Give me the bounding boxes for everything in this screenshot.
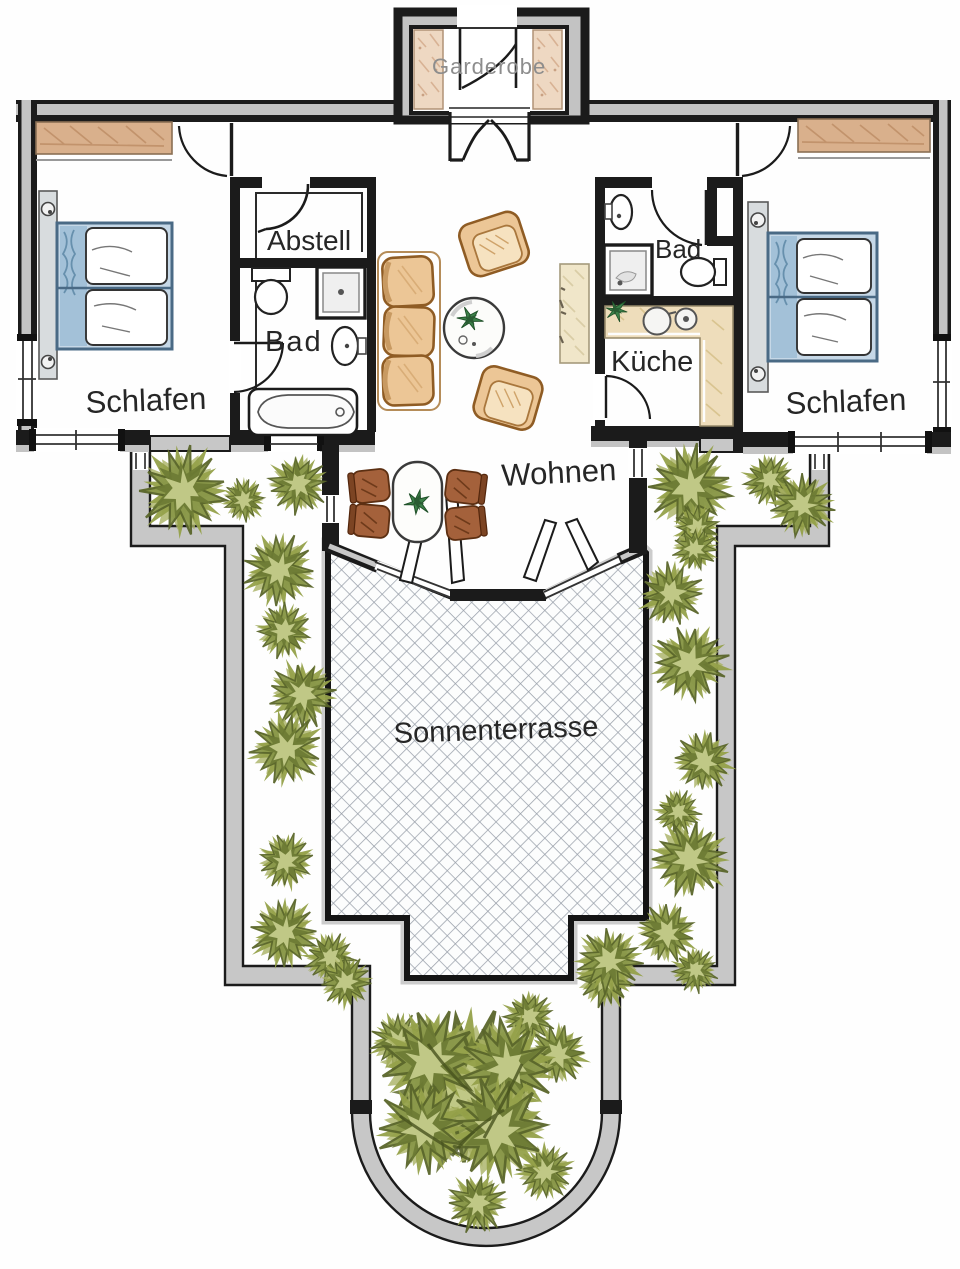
- svg-text:Küche: Küche: [611, 346, 693, 378]
- svg-text:Bad: Bad: [265, 326, 323, 358]
- svg-text:Bad: Bad: [655, 234, 701, 264]
- svg-text:Abstell: Abstell: [267, 225, 351, 256]
- svg-text:Schlafen: Schlafen: [85, 381, 207, 420]
- svg-text:Wohnen: Wohnen: [501, 452, 618, 493]
- svg-text:Garderobe: Garderobe: [432, 54, 546, 79]
- svg-text:Schlafen: Schlafen: [785, 382, 907, 421]
